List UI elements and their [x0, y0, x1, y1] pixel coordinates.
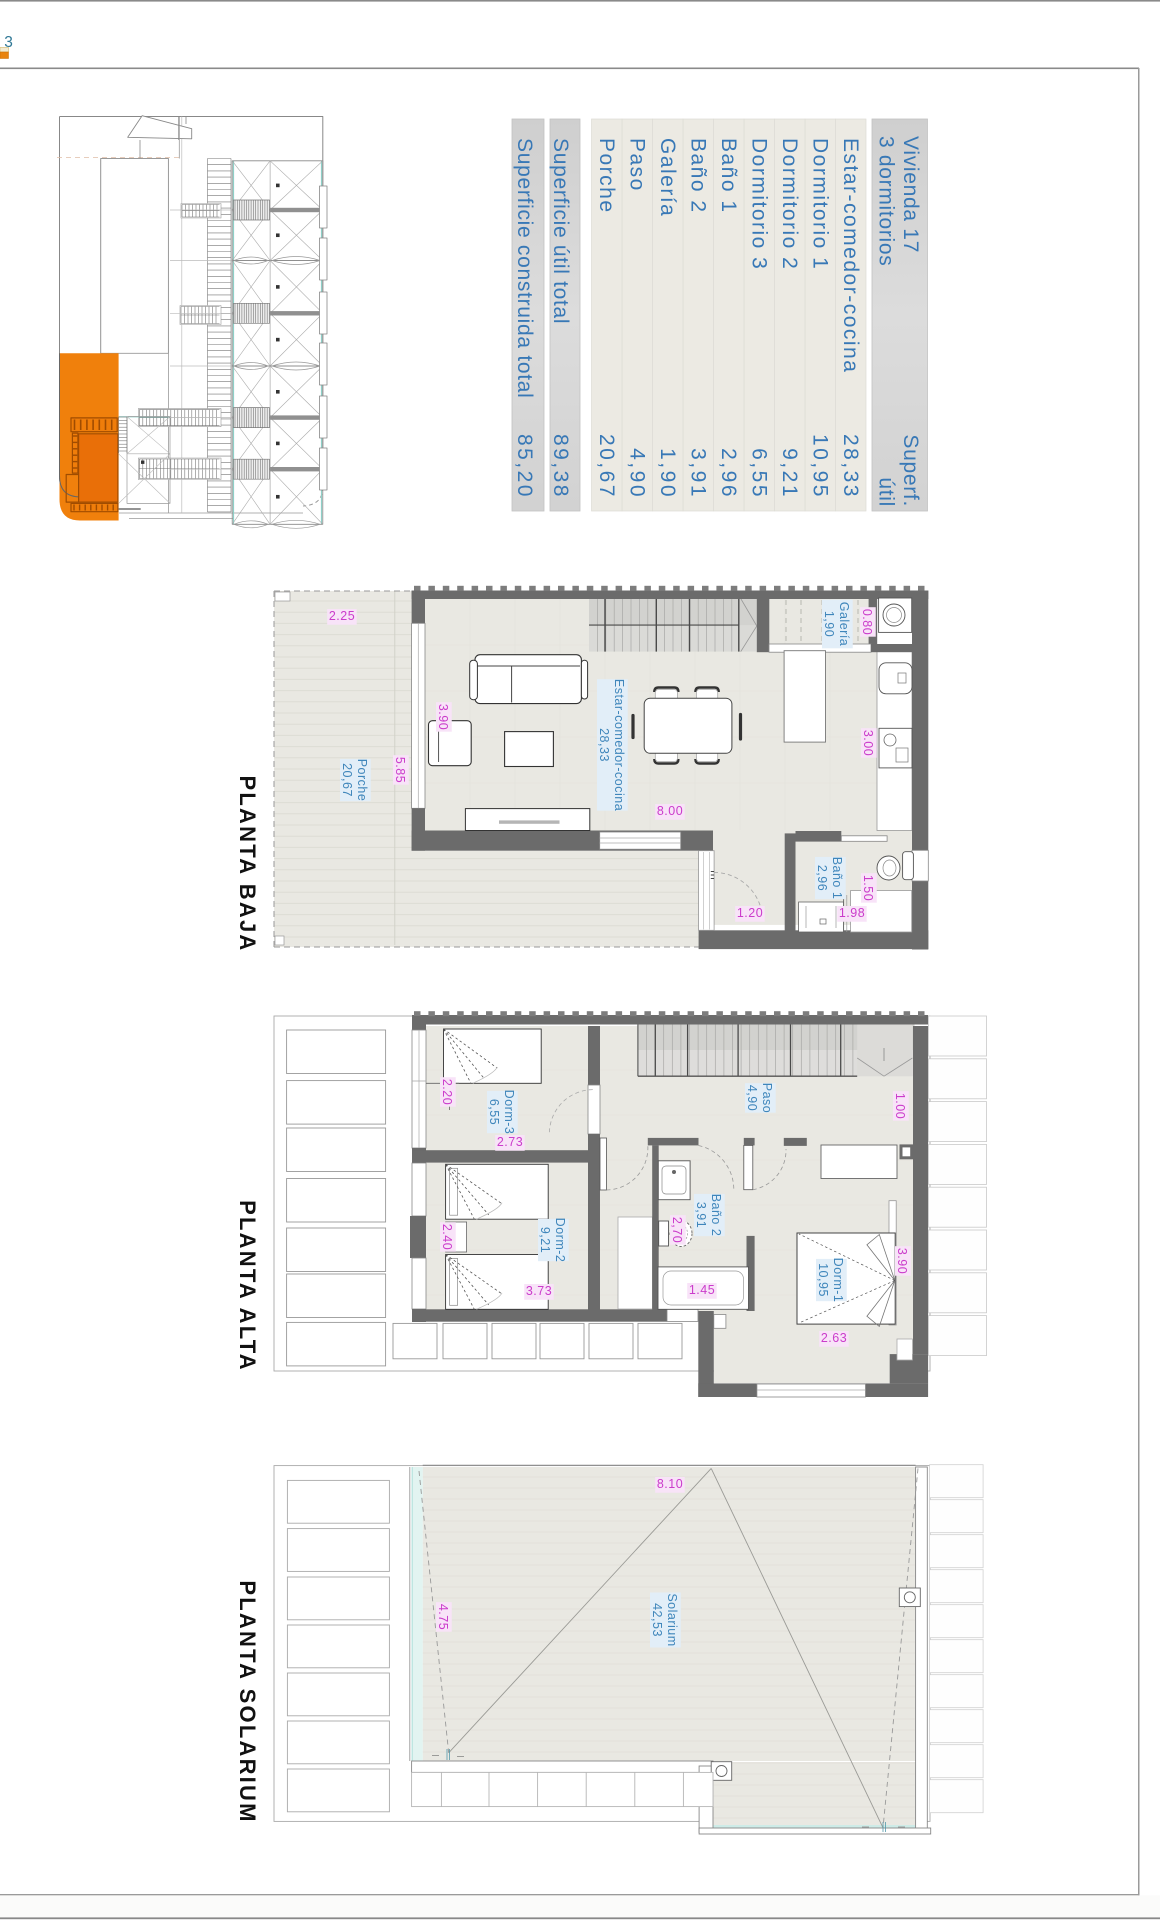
svg-text:Dormitorio 1: Dormitorio 1: [809, 138, 832, 270]
svg-text:Baño 2: Baño 2: [687, 138, 710, 214]
svg-text:Superf.: Superf.: [899, 434, 922, 507]
svg-text:Porche: Porche: [595, 138, 618, 214]
svg-text:2.73: 2.73: [497, 1135, 523, 1149]
svg-text:Dormitorio 3: Dormitorio 3: [748, 138, 771, 270]
svg-text:3.90: 3.90: [895, 1248, 909, 1274]
svg-text:3.90: 3.90: [436, 704, 450, 730]
svg-text:Dorm-110,95: Dorm-110,95: [816, 1258, 845, 1303]
svg-text:1.00: 1.00: [893, 1093, 907, 1119]
svg-text:5.85: 5.85: [393, 757, 407, 783]
svg-text:4.75: 4.75: [436, 1604, 450, 1630]
svg-text:Superficie construida total: Superficie construida total: [513, 138, 536, 399]
svg-text:10,95: 10,95: [809, 434, 832, 499]
svg-text:2.25: 2.25: [329, 609, 355, 623]
svg-text:4,90: 4,90: [626, 448, 649, 499]
svg-text:PLANTA ALTA: PLANTA ALTA: [235, 1200, 260, 1372]
svg-text:3.00: 3.00: [861, 730, 875, 756]
svg-text:1.98: 1.98: [839, 906, 865, 920]
svg-text:Vivienda 17: Vivienda 17: [899, 136, 922, 253]
svg-text:9,21: 9,21: [778, 448, 801, 499]
svg-text:útil: útil: [875, 477, 898, 507]
svg-text:85,20: 85,20: [513, 434, 536, 499]
svg-text:3.73: 3.73: [526, 1284, 552, 1298]
svg-text:PLANTA BAJA: PLANTA BAJA: [235, 776, 260, 953]
svg-text:Superficie útil total: Superficie útil total: [549, 138, 572, 324]
svg-text:Dormitorio 2: Dormitorio 2: [778, 138, 801, 270]
svg-text:Estar-comedor-cocina: Estar-comedor-cocina: [839, 138, 862, 373]
svg-text:2,70: 2,70: [670, 1217, 684, 1243]
svg-text:PLANTA SOLARIUM: PLANTA SOLARIUM: [235, 1580, 260, 1823]
svg-text:20,67: 20,67: [595, 434, 618, 499]
svg-text:2.63: 2.63: [821, 1331, 847, 1345]
svg-text:6,55: 6,55: [748, 448, 771, 499]
svg-text:Baño 1: Baño 1: [717, 138, 740, 214]
svg-text:2.20: 2.20: [440, 1079, 454, 1105]
svg-text:2.40: 2.40: [440, 1224, 454, 1250]
svg-text:Porche20,67: Porche20,67: [340, 759, 369, 802]
svg-text:Paso: Paso: [626, 138, 649, 192]
svg-text:3 dormitorios: 3 dormitorios: [875, 136, 898, 266]
svg-text:28,33: 28,33: [839, 434, 862, 499]
svg-text:1.50: 1.50: [861, 875, 875, 901]
svg-text:1.20: 1.20: [737, 906, 763, 920]
svg-text:3,91: 3,91: [687, 448, 710, 499]
svg-text:0.80: 0.80: [860, 609, 874, 635]
svg-text:89,38: 89,38: [549, 434, 572, 499]
svg-text:8.00: 8.00: [657, 804, 683, 818]
svg-text:Galería: Galería: [656, 138, 679, 217]
svg-text:1.45: 1.45: [689, 1283, 715, 1297]
svg-text:Paso4,90: Paso4,90: [745, 1083, 774, 1114]
svg-text:8.10: 8.10: [657, 1477, 683, 1491]
svg-text:2,96: 2,96: [717, 448, 740, 499]
svg-text:1,90: 1,90: [656, 448, 679, 499]
